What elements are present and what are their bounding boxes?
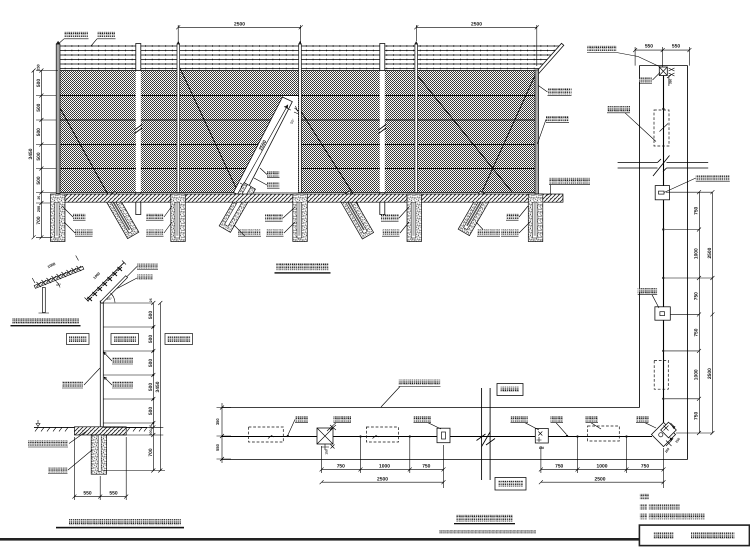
svg-text:2500: 2500: [471, 22, 482, 28]
svg-text:45°: 45°: [107, 297, 113, 301]
svg-text:750: 750: [337, 464, 345, 470]
svg-text:750: 750: [694, 292, 700, 300]
svg-text:700: 700: [148, 448, 154, 456]
svg-text:500: 500: [148, 335, 154, 343]
svg-text:45°: 45°: [56, 283, 62, 287]
svg-text:1000: 1000: [379, 464, 390, 470]
svg-text:500: 500: [36, 128, 42, 136]
svg-text:750: 750: [694, 412, 700, 420]
svg-text:700: 700: [36, 216, 42, 224]
svg-text:500: 500: [148, 383, 154, 391]
svg-text:550: 550: [645, 44, 653, 50]
svg-text:500: 500: [36, 176, 42, 184]
svg-text:25: 25: [149, 298, 153, 302]
svg-text:350: 350: [215, 418, 220, 425]
svg-text:1000: 1000: [694, 248, 700, 259]
svg-text:750: 750: [694, 206, 700, 214]
svg-text:2500: 2500: [707, 368, 713, 379]
svg-text:150: 150: [325, 449, 329, 455]
svg-text:550: 550: [83, 491, 91, 497]
svg-text:500: 500: [36, 152, 42, 160]
svg-text:750: 750: [422, 464, 430, 470]
svg-text:3450: 3450: [28, 148, 34, 159]
svg-text:500: 500: [36, 79, 42, 87]
svg-text:25: 25: [149, 425, 153, 429]
svg-text:200: 200: [37, 206, 41, 212]
svg-text:350: 350: [669, 79, 673, 85]
svg-text:500: 500: [148, 311, 154, 319]
svg-text:150: 150: [539, 446, 545, 450]
svg-text:3450: 3450: [155, 381, 161, 392]
svg-text:1000: 1000: [694, 369, 700, 380]
svg-text:550: 550: [109, 491, 117, 497]
svg-text:750: 750: [641, 464, 649, 470]
svg-text:25: 25: [37, 196, 41, 200]
svg-text:200: 200: [149, 430, 153, 436]
svg-text:550: 550: [215, 443, 220, 450]
svg-text:750: 750: [555, 464, 563, 470]
svg-text:500: 500: [148, 407, 154, 415]
svg-text:750: 750: [694, 328, 700, 336]
svg-text:500: 500: [36, 103, 42, 111]
svg-text:500: 500: [148, 359, 154, 367]
svg-text:550: 550: [672, 44, 680, 50]
svg-text:250: 250: [37, 64, 41, 70]
svg-text:2500: 2500: [234, 22, 245, 28]
svg-text:2500: 2500: [595, 476, 606, 482]
svg-text:2500: 2500: [377, 476, 388, 482]
svg-text:2500: 2500: [707, 247, 713, 258]
svg-text:1000: 1000: [597, 464, 608, 470]
